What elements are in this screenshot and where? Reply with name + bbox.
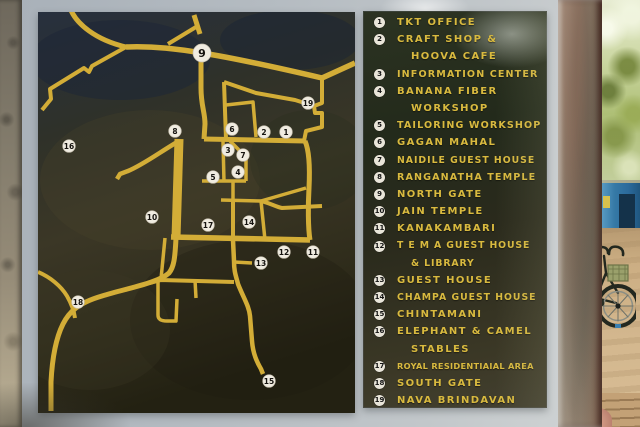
legend-label-line: TKT OFFICE <box>397 14 545 31</box>
map-marker-7: 7 <box>237 149 250 162</box>
legend-label-wrap-line: STABLES <box>397 341 545 358</box>
legend-number-badge: 14 <box>374 292 385 303</box>
legend-entry: 15CHINTAMANI <box>371 306 545 323</box>
map-marker-1: 1 <box>280 126 293 139</box>
legend-number-badge: 12 <box>374 241 385 252</box>
bicycle-valve <box>615 324 621 328</box>
legend-label: GUEST HOUSE <box>397 272 545 289</box>
shack-sign <box>603 196 610 208</box>
tree-trunk <box>558 0 602 427</box>
legend-label: ELEPHANT & CAMELSTABLES <box>397 323 545 357</box>
legend-entry: 2CRAFT SHOP &HOOVA CAFE <box>371 31 545 65</box>
legend-label: TKT OFFICE <box>397 14 545 31</box>
marker-number: 6 <box>229 125 234 134</box>
legend-number-column: 13 <box>371 272 397 289</box>
legend-entry: 10JAIN TEMPLE <box>371 203 545 220</box>
map-marker-4: 4 <box>232 166 245 179</box>
legend-label: RANGANATHA TEMPLE <box>397 169 545 186</box>
legend-number-column: 6 <box>371 134 397 151</box>
legend-number-badge: 9 <box>374 189 385 200</box>
map-panel: 12345678910111213141516171819 <box>38 12 355 413</box>
marker-number: 9 <box>198 47 206 60</box>
outdoor-background <box>598 0 640 427</box>
legend-label-line: JAIN TEMPLE <box>397 203 545 220</box>
map-road <box>176 139 179 238</box>
legend-entry: 6GAGAN MAHAL <box>371 134 545 151</box>
legend-number-column: 10 <box>371 203 397 220</box>
marker-number: 13 <box>256 259 266 268</box>
legend-label-line: TAILORING WORKSHOP <box>397 117 545 134</box>
legend-entry: 9NORTH GATE <box>371 186 545 203</box>
marker-number: 16 <box>64 142 74 151</box>
marker-number: 5 <box>210 173 215 182</box>
map-marker-17: 17 <box>202 219 215 232</box>
map-road <box>195 280 196 298</box>
legend-label-line: KANAKAMBARI <box>397 220 545 237</box>
legend-label: CHINTAMANI <box>397 306 545 323</box>
legend-entry: 12T E M A GUEST HOUSE& LIBRARY <box>371 237 545 271</box>
legend-label: SOUTH GATE <box>397 375 545 392</box>
marker-number: 2 <box>261 128 266 137</box>
map-road <box>234 262 252 263</box>
marker-number: 4 <box>235 168 240 177</box>
village-map: 12345678910111213141516171819 <box>38 12 355 413</box>
map-marker-8: 8 <box>169 125 182 138</box>
legend-label-line: T E M A GUEST HOUSE <box>397 237 545 254</box>
legend-number-column: 9 <box>371 186 397 203</box>
tree-foliage <box>598 0 640 190</box>
legend-label-line: CRAFT SHOP & <box>397 31 545 48</box>
map-road <box>171 237 310 240</box>
legend-number-column: 4 <box>371 83 397 100</box>
legend-number-column: 12 <box>371 237 397 254</box>
legend-label-line: NORTH GATE <box>397 186 545 203</box>
map-marker-11: 11 <box>307 246 320 259</box>
legend-label-line: INFORMATION CENTER <box>397 66 545 83</box>
map-marker-3: 3 <box>222 144 235 157</box>
shack-doorway <box>619 194 635 230</box>
legend-label-wrap-line: HOOVA CAFE <box>397 48 545 65</box>
legend-entry: 14CHAMPA GUEST HOUSE <box>371 289 545 306</box>
map-marker-16: 16 <box>63 140 76 153</box>
marker-number: 14 <box>244 218 254 227</box>
legend-number-badge: 4 <box>374 86 385 97</box>
legend-entry: 5TAILORING WORKSHOP <box>371 117 545 134</box>
legend-panel: 1TKT OFFICE2CRAFT SHOP &HOOVA CAFE3INFOR… <box>363 11 547 408</box>
legend-entry: 13GUEST HOUSE <box>371 272 545 289</box>
legend-label: NAVA BRINDAVAN <box>397 392 545 408</box>
photograph: 12345678910111213141516171819 1TKT OFFIC… <box>0 0 640 427</box>
map-marker-15: 15 <box>263 375 276 388</box>
map-marker-19: 19 <box>302 97 315 110</box>
legend-label: GAGAN MAHAL <box>397 134 545 151</box>
legend-number-badge: 7 <box>374 155 385 166</box>
map-marker-14: 14 <box>243 216 256 229</box>
legend-label-wrap-line: & LIBRARY <box>397 255 545 272</box>
stone-wall-edge <box>0 0 22 427</box>
legend-number-column: 2 <box>371 31 397 48</box>
legend-number-badge: 18 <box>374 378 385 389</box>
marker-number: 7 <box>240 151 245 160</box>
legend-number-badge: 6 <box>374 137 385 148</box>
marker-number: 18 <box>73 298 83 307</box>
legend-number-column: 11 <box>371 220 397 237</box>
map-marker-12: 12 <box>278 246 291 259</box>
legend-label-line: GAGAN MAHAL <box>397 134 545 151</box>
marker-number: 8 <box>172 127 177 136</box>
legend-entry: 1TKT OFFICE <box>371 14 545 31</box>
bicycle-hub <box>615 303 620 308</box>
legend-label-line: CHINTAMANI <box>397 306 545 323</box>
legend-label: BANANA FIBERWORKSHOP <box>397 83 545 117</box>
legend-entry: 4BANANA FIBERWORKSHOP <box>371 83 545 117</box>
marker-number: 11 <box>308 248 318 257</box>
legend-number-badge: 2 <box>374 34 385 45</box>
legend-number-badge: 17 <box>374 361 385 372</box>
legend-number-badge: 13 <box>374 275 385 286</box>
legend-label: CRAFT SHOP &HOOVA CAFE <box>397 31 545 65</box>
legend-number-column: 19 <box>371 392 397 408</box>
legend-number-column: 17 <box>371 358 397 375</box>
marker-number: 15 <box>264 377 274 386</box>
marker-number: 1 <box>283 128 288 137</box>
legend-number-badge: 16 <box>374 326 385 337</box>
legend-number-badge: 8 <box>374 172 385 183</box>
map-marker-10: 10 <box>146 211 159 224</box>
legend-number-badge: 11 <box>374 223 385 234</box>
map-marker-18: 18 <box>72 296 85 309</box>
legend-number-column: 1 <box>371 14 397 31</box>
legend-number-column: 14 <box>371 289 397 306</box>
legend-entry: 17ROYAL RESIDENTIAIAL AREA <box>371 358 545 375</box>
map-marker-2: 2 <box>258 126 271 139</box>
map-marker-13: 13 <box>255 257 268 270</box>
legend-number-column: 3 <box>371 66 397 83</box>
legend-number-column: 16 <box>371 323 397 340</box>
marker-number: 10 <box>147 213 157 222</box>
legend-label-line: NAVA BRINDAVAN <box>397 392 545 408</box>
marker-number: 12 <box>279 248 289 257</box>
painted-wall: 12345678910111213141516171819 1TKT OFFIC… <box>20 0 560 427</box>
legend-number-column: 7 <box>371 152 397 169</box>
legend-number-badge: 3 <box>374 69 385 80</box>
map-marker-5: 5 <box>207 171 220 184</box>
legend-label-line: CHAMPA GUEST HOUSE <box>397 289 545 306</box>
marker-number: 3 <box>225 146 230 155</box>
legend-number-column: 15 <box>371 306 397 323</box>
legend-entry: 18SOUTH GATE <box>371 375 545 392</box>
legend-label: CHAMPA GUEST HOUSE <box>397 289 545 306</box>
legend-label: NAIDILE GUEST HOUSE <box>397 152 545 169</box>
legend-label: TAILORING WORKSHOP <box>397 117 545 134</box>
legend-label: T E M A GUEST HOUSE& LIBRARY <box>397 237 545 271</box>
legend-label-line: NAIDILE GUEST HOUSE <box>397 152 545 169</box>
map-road <box>221 200 261 201</box>
blue-shack <box>601 180 640 230</box>
marker-number: 17 <box>203 221 213 230</box>
legend-number-column: 18 <box>371 375 397 392</box>
legend-number-badge: 5 <box>374 120 385 131</box>
legend-label-line: SOUTH GATE <box>397 375 545 392</box>
legend-number-badge: 1 <box>374 17 385 28</box>
legend-label-line: ELEPHANT & CAMEL <box>397 323 545 340</box>
legend-label: ROYAL RESIDENTIAIAL AREA <box>397 358 545 375</box>
bicycle-handlebar <box>609 247 623 255</box>
legend-label-line: RANGANATHA TEMPLE <box>397 169 545 186</box>
map-road <box>204 139 305 141</box>
legend-number-column: 8 <box>371 169 397 186</box>
legend-label-line: ROYAL RESIDENTIAIAL AREA <box>397 358 545 375</box>
legend-entry: 11KANAKAMBARI <box>371 220 545 237</box>
map-marker-6: 6 <box>226 123 239 136</box>
legend-entry: 16ELEPHANT & CAMELSTABLES <box>371 323 545 357</box>
legend-number-badge: 15 <box>374 309 385 320</box>
marker-number: 19 <box>303 99 313 108</box>
legend-number-badge: 19 <box>374 395 385 406</box>
legend-entry: 8RANGANATHA TEMPLE <box>371 169 545 186</box>
legend-label-line: GUEST HOUSE <box>397 272 545 289</box>
legend-list: 1TKT OFFICE2CRAFT SHOP &HOOVA CAFE3INFOR… <box>371 14 545 408</box>
legend-label-line: BANANA FIBER <box>397 83 545 100</box>
legend-label-wrap-line: WORKSHOP <box>397 100 545 117</box>
legend-entry: 7NAIDILE GUEST HOUSE <box>371 152 545 169</box>
legend-label: KANAKAMBARI <box>397 220 545 237</box>
legend-number-column: 5 <box>371 117 397 134</box>
legend-entry: 19NAVA BRINDAVAN <box>371 392 545 408</box>
legend-number-badge: 10 <box>374 206 385 217</box>
legend-label: JAIN TEMPLE <box>397 203 545 220</box>
legend-entry: 3INFORMATION CENTER <box>371 66 545 83</box>
legend-label: INFORMATION CENTER <box>397 66 545 83</box>
legend-label: NORTH GATE <box>397 186 545 203</box>
map-marker-9: 9 <box>193 44 211 62</box>
